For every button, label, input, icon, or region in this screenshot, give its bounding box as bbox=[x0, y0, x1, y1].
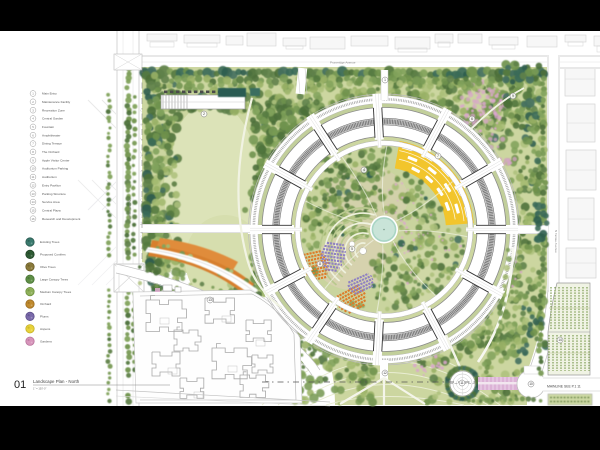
svg-text:2: 2 bbox=[203, 112, 205, 116]
svg-text:Existing Trees: Existing Trees bbox=[40, 240, 60, 244]
svg-text:Large Canopy Trees: Large Canopy Trees bbox=[40, 277, 68, 281]
svg-text:Entry Pavilion: Entry Pavilion bbox=[42, 183, 61, 187]
svg-text:Medium Canopy Trees: Medium Canopy Trees bbox=[40, 290, 72, 294]
svg-text:Service Area: Service Area bbox=[42, 200, 60, 204]
svg-text:Maintenance Facility: Maintenance Facility bbox=[42, 100, 71, 104]
svg-text:Central Plaza: Central Plaza bbox=[42, 209, 61, 213]
svg-text:11: 11 bbox=[460, 381, 464, 385]
svg-text:MAINLINE SEE P.1 11: MAINLINE SEE P.1 11 bbox=[547, 385, 581, 389]
svg-text:5: 5 bbox=[351, 247, 353, 251]
svg-text:1: 1 bbox=[384, 78, 386, 82]
svg-text:Central Garden: Central Garden bbox=[42, 117, 63, 121]
svg-text:13: 13 bbox=[208, 298, 212, 302]
svg-text:11: 11 bbox=[32, 175, 35, 179]
svg-text:Gardens: Gardens bbox=[40, 339, 52, 343]
svg-text:The Orchard: The Orchard bbox=[42, 150, 60, 154]
svg-text:Auditorium Parking: Auditorium Parking bbox=[42, 167, 68, 171]
svg-text:N Tantau Avenue: N Tantau Avenue bbox=[554, 230, 558, 253]
svg-text:Aspens: Aspens bbox=[40, 327, 51, 331]
svg-text:Proposed Conifers: Proposed Conifers bbox=[40, 253, 66, 257]
svg-text:N Wolfe Road: N Wolfe Road bbox=[128, 200, 132, 219]
svg-text:14: 14 bbox=[31, 200, 35, 204]
svg-text:9: 9 bbox=[512, 94, 514, 98]
svg-text:Orchard: Orchard bbox=[40, 302, 51, 306]
svg-text:16: 16 bbox=[31, 217, 35, 221]
svg-text:6: 6 bbox=[471, 117, 473, 121]
svg-text:7: 7 bbox=[437, 154, 439, 158]
svg-text:10: 10 bbox=[529, 382, 533, 386]
svg-text:4: 4 bbox=[363, 168, 365, 172]
svg-text:Main Entry: Main Entry bbox=[42, 92, 57, 96]
svg-text:14: 14 bbox=[558, 338, 562, 342]
svg-text:Landscape Plan - North: Landscape Plan - North bbox=[33, 379, 80, 384]
svg-text:13: 13 bbox=[31, 192, 35, 196]
svg-text:Amphitheater: Amphitheater bbox=[42, 133, 60, 137]
svg-text:15: 15 bbox=[31, 209, 35, 213]
svg-text:Olive Trees: Olive Trees bbox=[40, 265, 56, 269]
svg-text:Recreation Zone: Recreation Zone bbox=[42, 108, 65, 112]
svg-text:1" = 150'-0": 1" = 150'-0" bbox=[33, 387, 46, 391]
svg-text:Parking Structure: Parking Structure bbox=[42, 192, 66, 196]
svg-text:Plums: Plums bbox=[40, 315, 49, 319]
svg-text:Auditorium: Auditorium bbox=[42, 175, 57, 179]
svg-text:Fountain: Fountain bbox=[42, 125, 54, 129]
svg-text:10: 10 bbox=[31, 167, 35, 171]
svg-text:Apple Visitor Center: Apple Visitor Center bbox=[42, 158, 69, 162]
svg-text:Research and Development: Research and Development bbox=[42, 217, 80, 221]
svg-text:12: 12 bbox=[383, 371, 387, 375]
svg-text:Pruneridge Avenue: Pruneridge Avenue bbox=[330, 61, 356, 65]
svg-text:8: 8 bbox=[319, 262, 321, 266]
svg-text:12: 12 bbox=[31, 183, 35, 187]
svg-text:01: 01 bbox=[14, 379, 26, 391]
svg-text:Dining Terrace: Dining Terrace bbox=[42, 142, 62, 146]
